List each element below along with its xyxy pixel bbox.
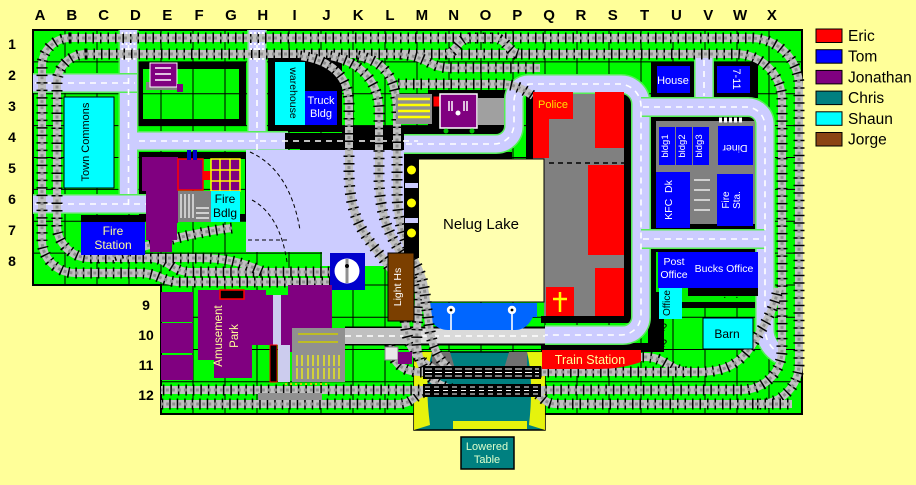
svg-text:Train Station: Train Station <box>555 353 625 367</box>
svg-text:3: 3 <box>8 98 16 114</box>
svg-text:2: 2 <box>8 67 16 83</box>
svg-text:J: J <box>322 7 330 24</box>
svg-text:W: W <box>733 7 748 24</box>
svg-text:? ?: ? ? <box>722 289 740 301</box>
svg-text:6: 6 <box>8 191 16 207</box>
svg-text:Jorge: Jorge <box>848 132 887 149</box>
svg-text:M: M <box>416 7 429 24</box>
svg-text:10: 10 <box>138 327 154 343</box>
svg-text:Park: Park <box>229 324 241 348</box>
svg-text:Barn: Barn <box>714 327 739 341</box>
svg-text:Office: Office <box>662 290 673 316</box>
svg-text:12: 12 <box>138 387 154 403</box>
svg-text:5: 5 <box>8 160 16 176</box>
svg-text:Eric: Eric <box>848 28 875 45</box>
svg-text:C: C <box>98 7 109 24</box>
svg-text:Shaun: Shaun <box>848 111 893 128</box>
svg-text:N: N <box>448 7 459 24</box>
svg-text:O: O <box>480 7 492 24</box>
svg-text:Sta.: Sta. <box>732 191 743 209</box>
svg-text:?: ? <box>661 338 667 350</box>
svg-text:T: T <box>640 7 649 24</box>
svg-text:H: H <box>257 7 268 24</box>
svg-text:Light Hs: Light Hs <box>392 268 404 307</box>
svg-text:1: 1 <box>8 36 16 52</box>
svg-text:R: R <box>576 7 587 24</box>
svg-text:I: I <box>292 7 296 24</box>
svg-text:G: G <box>225 7 237 24</box>
svg-text:8: 8 <box>8 253 16 269</box>
svg-text:Chris: Chris <box>848 90 884 107</box>
svg-text:P: P <box>512 7 522 24</box>
svg-text:11: 11 <box>139 357 154 373</box>
svg-text:Police: Police <box>538 99 568 111</box>
svg-text:K: K <box>353 7 364 24</box>
svg-text:Truck: Truck <box>307 95 335 107</box>
svg-text:9: 9 <box>142 297 150 313</box>
svg-text:KFC Dk: KFC Dk <box>663 179 675 219</box>
svg-text:D: D <box>130 7 141 24</box>
svg-text:Jonathan: Jonathan <box>848 69 912 86</box>
svg-text:Diner: Diner <box>722 142 748 154</box>
svg-text:Nelug Lake: Nelug Lake <box>443 216 519 233</box>
svg-text:bldg2: bldg2 <box>677 134 688 157</box>
svg-text:Town Commons: Town Commons <box>80 102 92 181</box>
svg-text:Fire: Fire <box>215 192 236 206</box>
svg-text:Post: Post <box>663 256 684 268</box>
svg-text:4: 4 <box>8 129 16 145</box>
svg-text:B: B <box>66 7 77 24</box>
svg-text:7: 7 <box>8 222 16 238</box>
svg-text:U: U <box>671 7 682 24</box>
svg-text:F: F <box>195 7 204 24</box>
svg-text:Bucks Office: Bucks Office <box>695 263 754 275</box>
svg-text:V: V <box>703 7 713 24</box>
svg-text:7-11: 7-11 <box>730 68 742 89</box>
svg-text:Office: Office <box>660 269 687 281</box>
svg-text:Lowered: Lowered <box>466 441 508 453</box>
svg-text:L: L <box>385 7 394 24</box>
svg-text:Bdlg: Bdlg <box>213 206 237 220</box>
svg-text:E: E <box>162 7 172 24</box>
svg-text:bldg3: bldg3 <box>694 134 705 157</box>
svg-text:Fire: Fire <box>721 191 732 209</box>
svg-text:Amusement: Amusement <box>213 305 225 367</box>
svg-text:House: House <box>657 75 689 87</box>
svg-text:X: X <box>767 7 777 24</box>
svg-text:Q: Q <box>543 7 555 24</box>
svg-text:Table: Table <box>474 454 500 466</box>
svg-text:bldg1: bldg1 <box>660 134 671 157</box>
svg-text:Tom: Tom <box>848 49 877 66</box>
svg-text:Fire: Fire <box>103 224 124 238</box>
svg-text:warehouse: warehouse <box>287 66 299 119</box>
svg-text:A: A <box>35 7 46 24</box>
svg-text:Bldg: Bldg <box>310 108 332 120</box>
svg-text:?: ? <box>661 322 667 334</box>
svg-text:S: S <box>608 7 618 24</box>
svg-text:Station: Station <box>94 238 131 252</box>
